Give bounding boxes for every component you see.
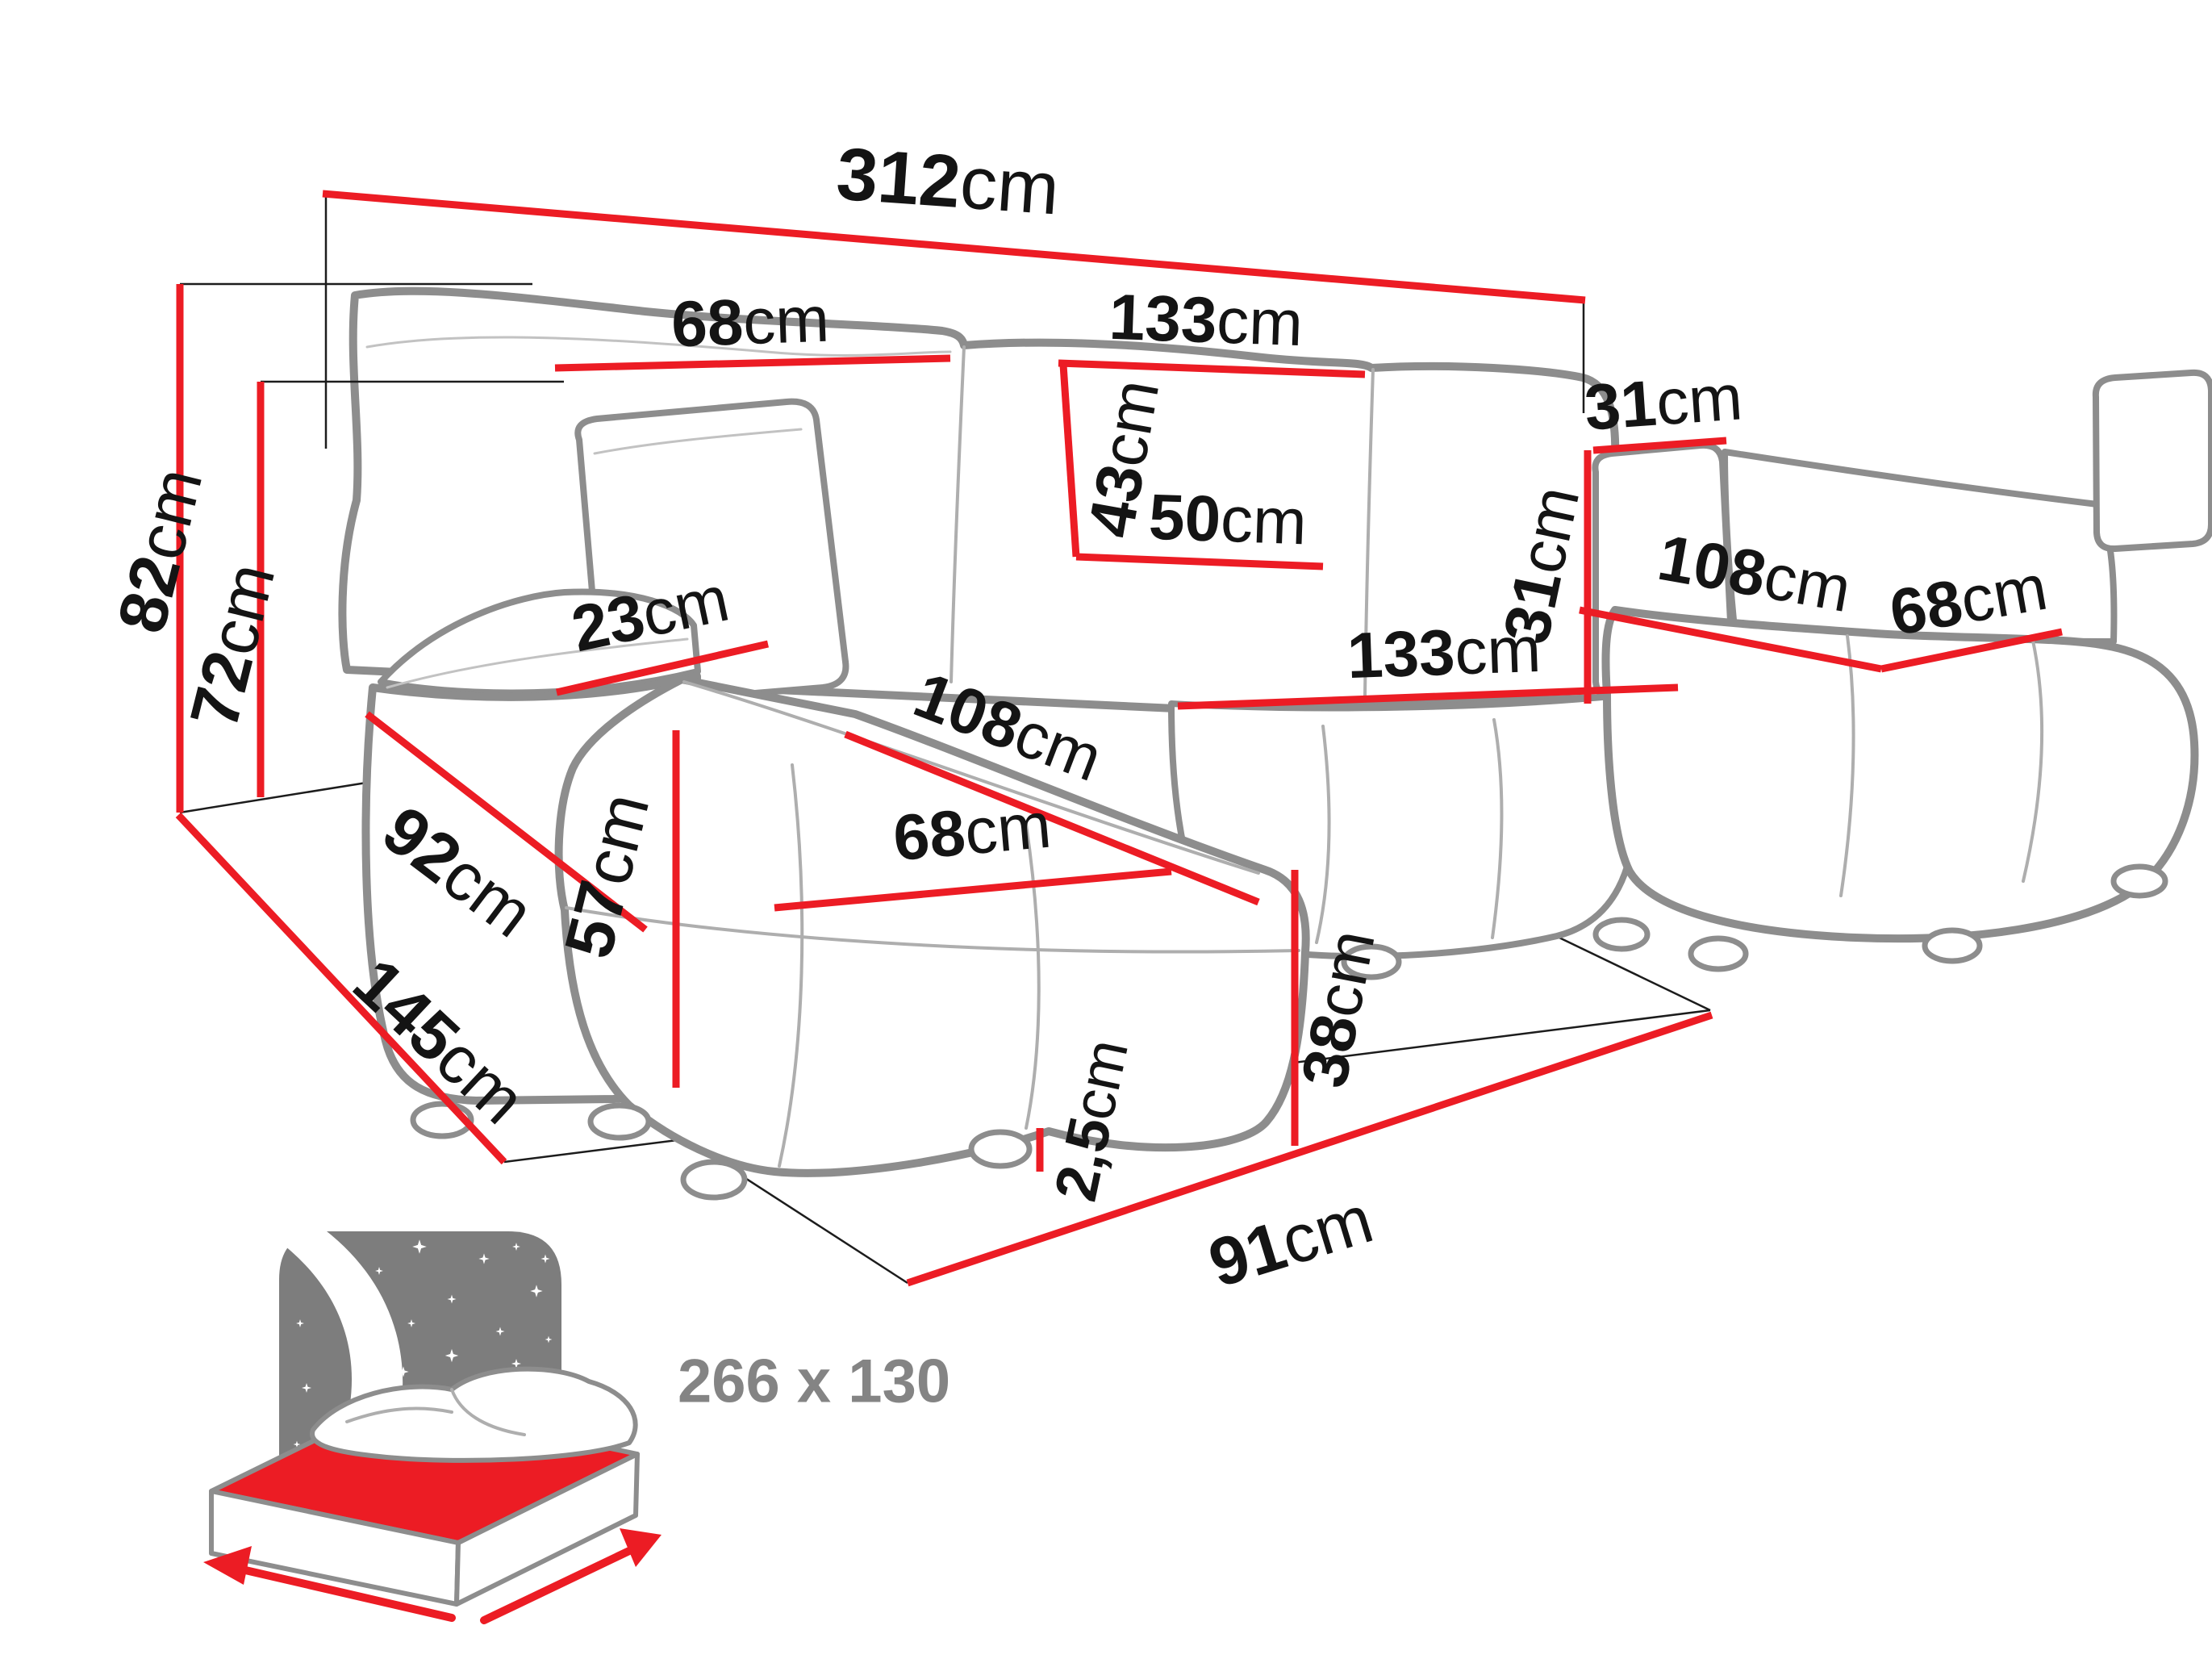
label-backrest-left-width: 68cm — [670, 282, 831, 360]
label-front-clearance: 91cm — [1200, 1181, 1381, 1302]
sofa-leg — [971, 1132, 1029, 1166]
sofa-leg — [1925, 930, 1980, 961]
right-chaise — [1605, 610, 2194, 938]
sofa-dimension-diagram: 312cm 68cm 133cm 31cm 31cm 43cm 50cm 82c… — [0, 0, 2212, 1659]
label-total-height: 82cm — [103, 461, 217, 640]
sofa-leg — [1596, 920, 1647, 949]
sofa-leg — [683, 1162, 745, 1197]
label-total-width: 312cm — [834, 132, 1062, 230]
label-seat-depth-middle: 50cm — [1148, 480, 1308, 558]
label-seat-middle-width: 133cm — [1346, 612, 1542, 691]
bed-arrow-right-head — [620, 1528, 662, 1567]
sofa-leg — [1691, 938, 1746, 969]
label-base-height: 72cm — [176, 556, 290, 735]
diagram-canvas: 312cm 68cm 133cm 31cm 31cm 43cm 50cm 82c… — [0, 0, 2212, 1659]
label-chaise-left-width: 68cm — [891, 788, 1054, 874]
sofa-leg — [2114, 867, 2165, 896]
sleeping-area-label: 266 x 130 — [678, 1348, 950, 1416]
label-pillow-width: 31cm — [1582, 361, 1744, 443]
label-backrest-middle-width: 133cm — [1108, 280, 1304, 358]
sofa-leg — [591, 1105, 649, 1138]
sofa-drawing — [342, 291, 2211, 1197]
right-arm-cushion — [2096, 373, 2211, 549]
sleeping-bed-icon: 266 x 130 — [203, 1228, 950, 1620]
